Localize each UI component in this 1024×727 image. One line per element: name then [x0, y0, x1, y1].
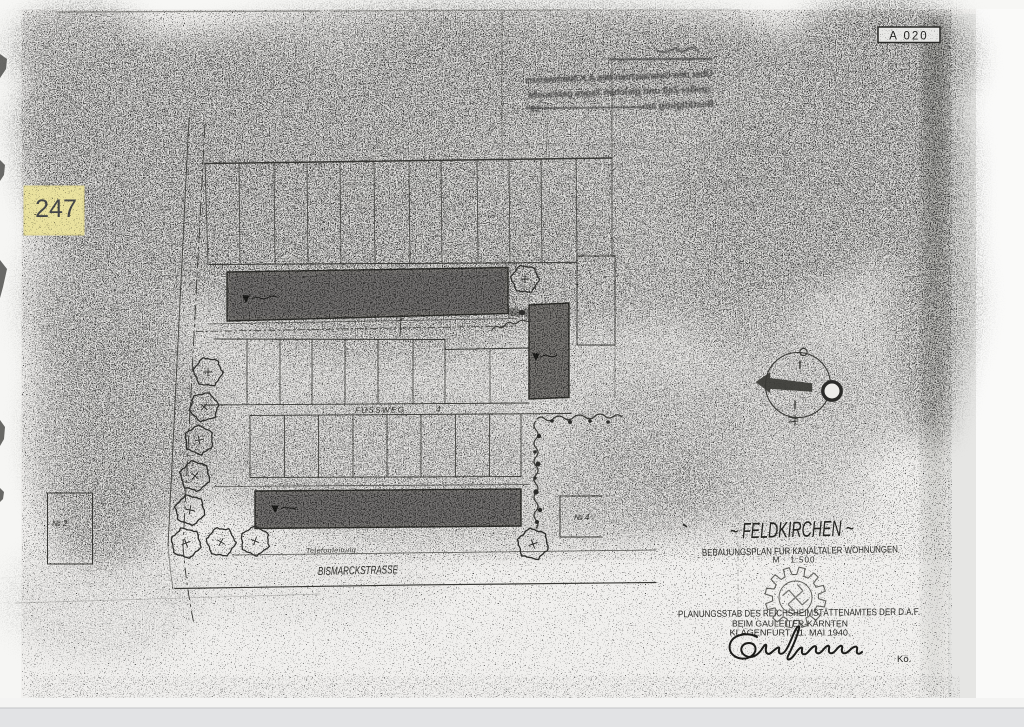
svg-text:№ 2: № 2 — [52, 519, 68, 528]
svg-text:Kö.: Kö. — [897, 654, 911, 665]
svg-text:~ FELDKIRCHEN ~: ~ FELDKIRCHEN ~ — [729, 515, 854, 543]
svg-text:№ 4: № 4 — [574, 513, 590, 522]
svg-text:BISMARCKSTRASSE: BISMARCKSTRASSE — [318, 564, 398, 578]
svg-text:19: 19 — [530, 104, 541, 115]
svg-text:M · 1:500: M · 1:500 — [773, 556, 816, 565]
svg-text:KLAGENFURT, 11. MAI 1940.: KLAGENFURT, 11. MAI 1940. — [730, 628, 851, 638]
svg-text:FUSSWEG: FUSSWEG — [355, 405, 405, 415]
svg-text:4: 4 — [436, 405, 441, 414]
svg-text:Telefonleitung: Telefonleitung — [306, 547, 356, 555]
